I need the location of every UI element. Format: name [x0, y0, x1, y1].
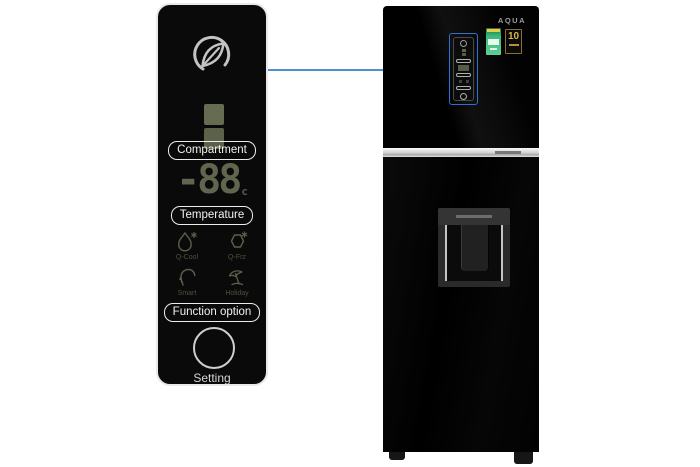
- warranty-years: 10: [506, 30, 521, 44]
- dispenser-trim-right: [501, 225, 503, 281]
- mini-compartment-button: [456, 59, 471, 63]
- droplet-snowflake-icon: [175, 229, 199, 253]
- eco-leaf-icon: [158, 31, 266, 77]
- dispenser-recess: [445, 225, 503, 281]
- mode-label: Holiday: [225, 290, 248, 297]
- control-panel-on-door: [453, 37, 474, 101]
- hexagon-snowflake-icon: [225, 229, 249, 253]
- mode-label: Q-Frz: [228, 254, 246, 261]
- energy-label-tick: [490, 48, 497, 50]
- mode-q-frz: Q-Frz: [212, 229, 262, 261]
- mini-indicator-square: [462, 49, 466, 52]
- energy-label-header: [487, 29, 500, 32]
- mode-smart: Smart: [162, 265, 212, 297]
- temperature-unit: c: [241, 185, 248, 198]
- water-dispenser: [438, 208, 510, 287]
- mode-q-cool: Q-Cool: [162, 229, 212, 261]
- head-profile-icon: [175, 265, 199, 289]
- mini-indicator-square: [462, 53, 466, 56]
- function-option-button: Function option: [164, 303, 261, 322]
- mini-temperature-button: [456, 73, 471, 77]
- temperature-value: -88: [176, 157, 239, 203]
- freezer-door: AQUA 10: [383, 6, 539, 148]
- fridge-foot-right: [514, 452, 533, 464]
- mini-function-button: [456, 86, 471, 90]
- fridge-door: [383, 157, 539, 452]
- energy-label-band: [488, 39, 499, 45]
- dispenser-trim-left: [445, 225, 447, 281]
- fridge-foot-left: [389, 452, 405, 460]
- dispenser-header: [438, 208, 510, 225]
- mode-grid: Q-Cool Q-Frz Smart: [162, 229, 262, 297]
- mini-eco-leaf-icon: [460, 40, 467, 47]
- mini-setting-button: [460, 93, 467, 100]
- mode-holiday: Holiday: [212, 265, 262, 297]
- brand-logo: AQUA: [498, 16, 526, 25]
- control-panel-detail: Compartment -88c Temperature Q-Cool Q-Fr…: [156, 3, 268, 386]
- mode-label: Smart: [178, 290, 197, 297]
- door-divider-trim: [383, 148, 539, 157]
- model-text-strip: [495, 151, 521, 154]
- mini-temperature-display: [458, 65, 469, 71]
- mode-label: Q-Cool: [176, 254, 198, 261]
- setting-button: [193, 327, 235, 369]
- mini-mode-icon: [466, 80, 469, 83]
- energy-rating-label: [486, 28, 501, 55]
- mini-mode-icon: [459, 80, 462, 83]
- umbrella-icon: [225, 265, 249, 289]
- dispenser-paddle: [461, 225, 489, 271]
- dispenser-label-strip: [456, 215, 492, 218]
- product-image: Compartment -88c Temperature Q-Cool Q-Fr…: [0, 0, 700, 467]
- warranty-badge-bar: [509, 44, 519, 46]
- refrigerator: AQUA 10: [383, 6, 539, 464]
- setting-label: Setting: [158, 371, 266, 385]
- indicator-square-top: [204, 104, 224, 125]
- warranty-badge: 10: [505, 29, 522, 54]
- temperature-button: Temperature: [171, 206, 254, 225]
